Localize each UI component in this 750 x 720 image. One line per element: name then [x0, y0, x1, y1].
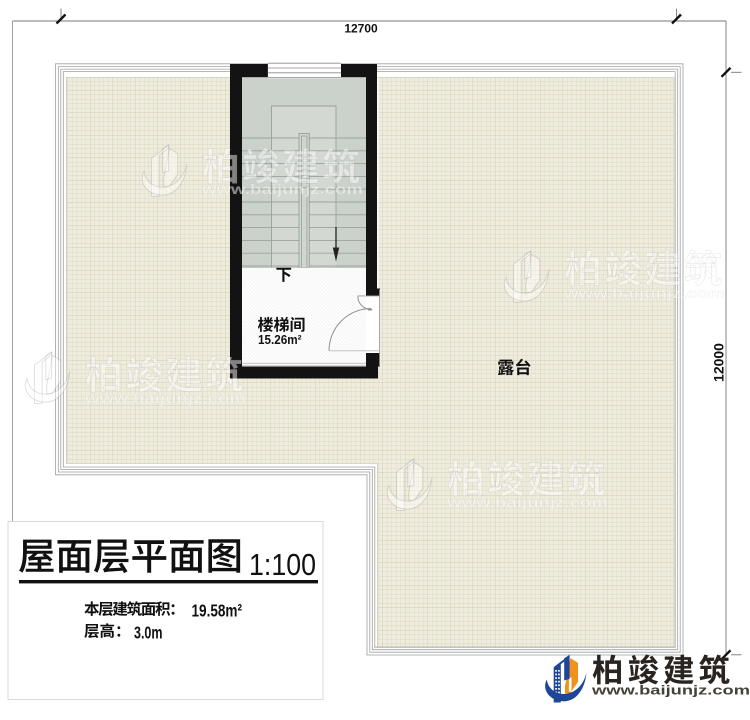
svg-text:www.baijunjz.com: www.baijunjz.com [84, 391, 246, 406]
svg-text:3.0m: 3.0m [134, 623, 163, 643]
svg-text:www.baijunjz.com: www.baijunjz.com [591, 683, 750, 698]
svg-text:www.baijunjz.com: www.baijunjz.com [201, 182, 363, 197]
svg-text:www.baijunjz.com: www.baijunjz.com [446, 495, 608, 510]
svg-text:12700: 12700 [344, 21, 378, 35]
svg-text:19.58m²: 19.58m² [192, 601, 243, 621]
svg-text:12000: 12000 [711, 343, 727, 382]
svg-text:15.26m²: 15.26m² [258, 332, 302, 347]
svg-text:1:100: 1:100 [249, 547, 316, 582]
svg-text:www.baijunjz.com: www.baijunjz.com [563, 286, 725, 301]
